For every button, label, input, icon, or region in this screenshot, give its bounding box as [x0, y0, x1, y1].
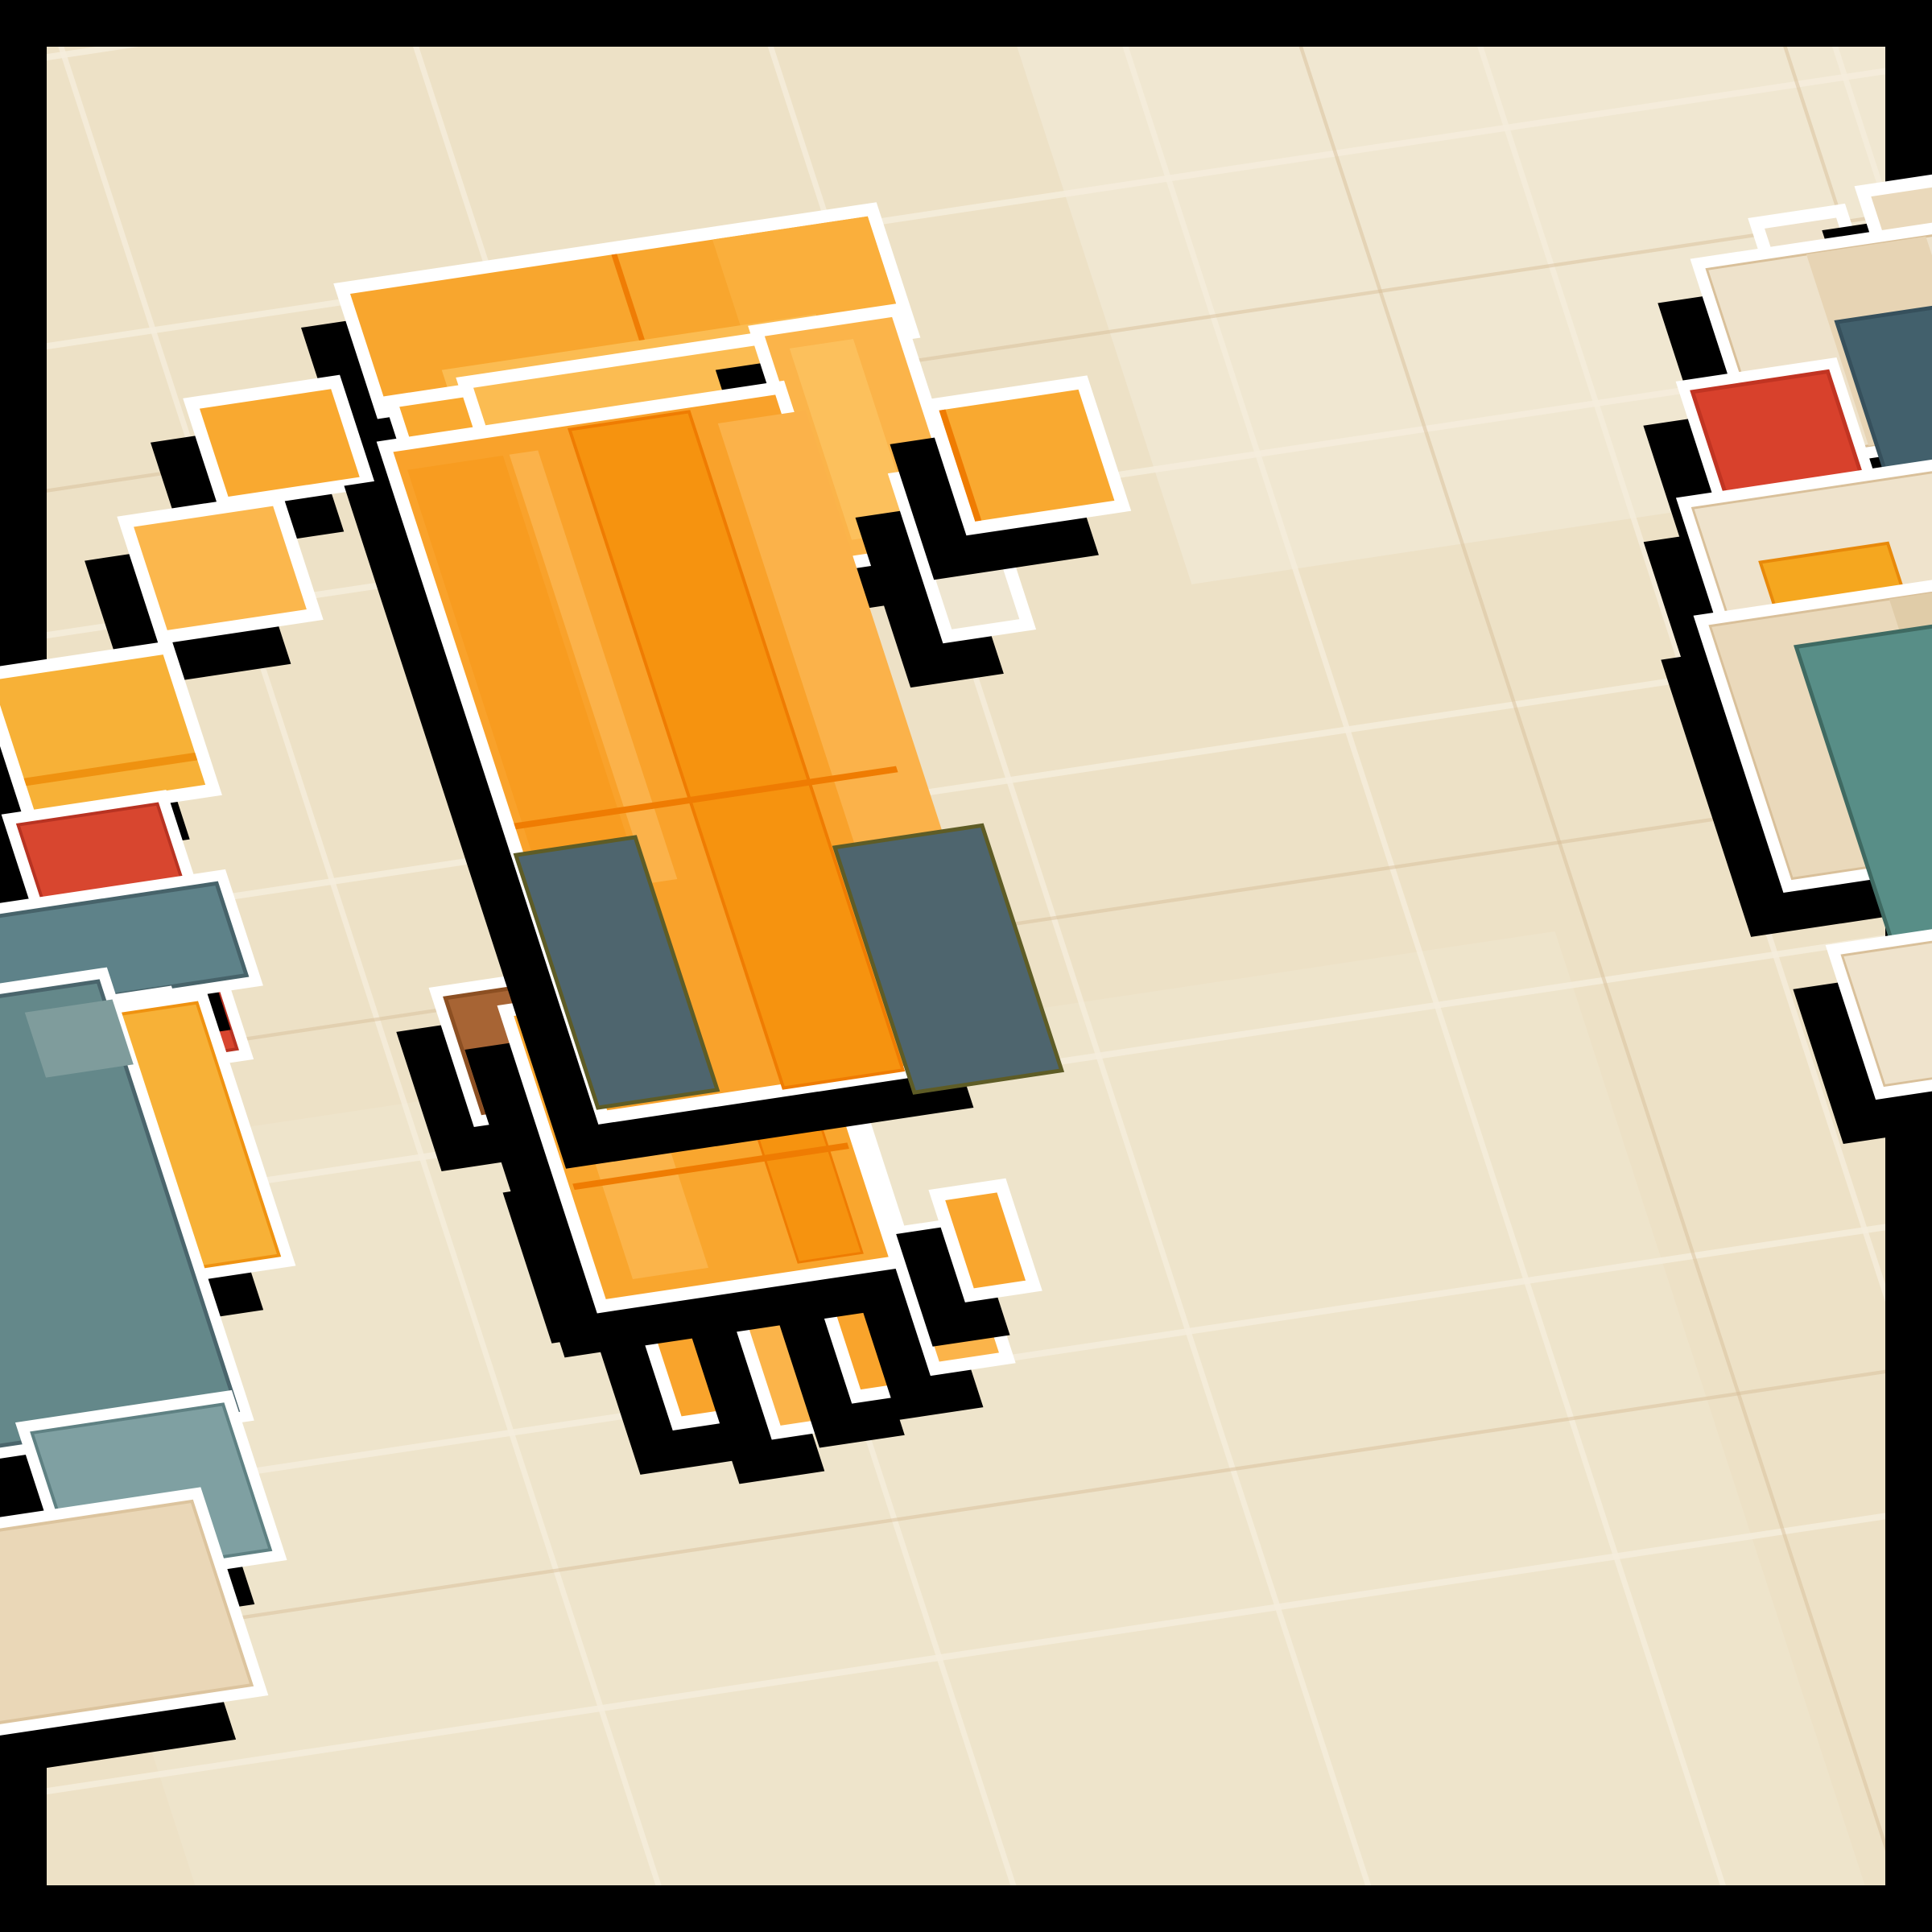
left-wing-1 — [200, 389, 360, 497]
artwork — [0, 0, 1932, 1932]
artwork-stage: Abstract generative collage: three skewe… — [0, 0, 1932, 1932]
